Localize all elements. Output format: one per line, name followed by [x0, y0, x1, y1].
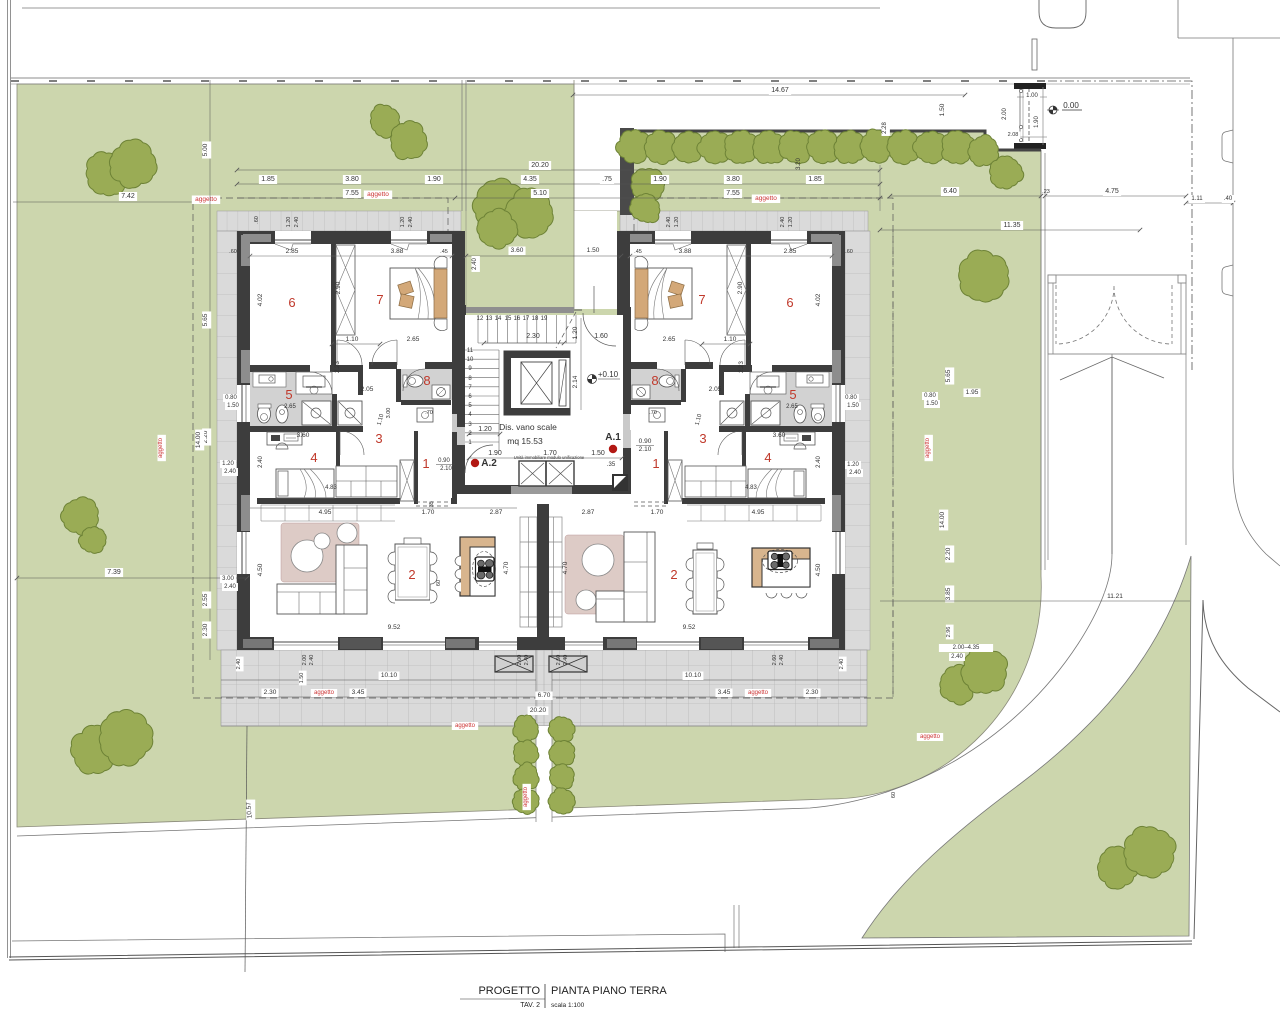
- svg-text:2.60: 2.60: [772, 655, 778, 666]
- svg-text:+0.10: +0.10: [598, 370, 619, 379]
- svg-text:3.60: 3.60: [297, 432, 310, 439]
- svg-text:1.50: 1.50: [587, 247, 600, 254]
- svg-text:2.20: 2.20: [945, 547, 952, 560]
- svg-text:aggetto: aggetto: [925, 437, 931, 458]
- svg-text:7.39: 7.39: [107, 569, 121, 576]
- svg-text:.23: .23: [1042, 189, 1050, 195]
- svg-text:2.40: 2.40: [258, 456, 264, 468]
- svg-text:A.1: A.1: [605, 432, 621, 443]
- svg-text:aggetto: aggetto: [367, 191, 389, 198]
- svg-text:11.21: 11.21: [1107, 593, 1123, 600]
- svg-text:14.00: 14.00: [195, 431, 202, 448]
- svg-text:2.40: 2.40: [780, 217, 786, 228]
- svg-text:0.80: 0.80: [845, 395, 857, 401]
- svg-text:1.20: 1.20: [788, 217, 794, 228]
- svg-text:7.55: 7.55: [345, 190, 359, 197]
- svg-text:2.40: 2.40: [563, 655, 569, 666]
- svg-text:4.70: 4.70: [562, 561, 569, 574]
- svg-text:4.02: 4.02: [257, 293, 264, 306]
- svg-text:18: 18: [532, 316, 539, 322]
- svg-text:10.57: 10.57: [245, 801, 253, 818]
- svg-text:1.20: 1.20: [847, 462, 859, 468]
- svg-text:10: 10: [467, 357, 474, 363]
- svg-text:2.65: 2.65: [663, 336, 676, 343]
- svg-text:0.80: 0.80: [225, 395, 237, 401]
- svg-text:1.70: 1.70: [422, 509, 435, 516]
- svg-text:3.45: 3.45: [718, 689, 731, 696]
- svg-text:2.55: 2.55: [202, 593, 209, 606]
- svg-text:2.40: 2.40: [236, 659, 242, 670]
- svg-text:2: 2: [670, 567, 677, 582]
- svg-text:0.90: 0.90: [438, 458, 450, 464]
- svg-text:A.2: A.2: [481, 458, 497, 469]
- svg-text:2.40: 2.40: [839, 659, 845, 670]
- svg-text:1.20: 1.20: [674, 217, 680, 228]
- svg-text:2.87: 2.87: [582, 509, 595, 516]
- svg-text:15: 15: [505, 316, 512, 322]
- svg-text:4.95: 4.95: [319, 509, 332, 516]
- svg-text:2.30: 2.30: [526, 333, 540, 340]
- svg-text:2.00: 2.00: [1002, 108, 1008, 120]
- svg-text:1.90: 1.90: [488, 450, 502, 457]
- svg-text:.35: .35: [607, 462, 616, 468]
- svg-text:1.20: 1.20: [286, 217, 292, 228]
- svg-text:2.23: 2.23: [335, 361, 341, 373]
- svg-text:2.00–4.35: 2.00–4.35: [953, 645, 980, 651]
- svg-text:2.85: 2.85: [286, 248, 299, 255]
- svg-text:14.00: 14.00: [939, 511, 946, 528]
- svg-text:3: 3: [699, 431, 706, 446]
- svg-text:5.65: 5.65: [945, 369, 952, 382]
- svg-text:11.35: 11.35: [1004, 222, 1021, 229]
- svg-text:2.00: 2.00: [517, 655, 523, 666]
- svg-text:11: 11: [467, 348, 474, 354]
- svg-text:2.85: 2.85: [784, 248, 797, 255]
- svg-text:2.00: 2.00: [302, 655, 308, 666]
- svg-text:9.52: 9.52: [388, 624, 401, 631]
- svg-text:1.20: 1.20: [400, 217, 406, 228]
- svg-text:.70: .70: [649, 410, 657, 416]
- svg-text:20.20: 20.20: [531, 162, 549, 169]
- svg-text:.70: .70: [425, 410, 433, 416]
- svg-text:TAV. 2: TAV. 2: [520, 1002, 540, 1009]
- svg-text:9.52: 9.52: [683, 624, 696, 631]
- svg-text:PROGETTO: PROGETTO: [478, 985, 540, 997]
- svg-text:2.65: 2.65: [786, 404, 798, 410]
- svg-text:2.05: 2.05: [709, 386, 722, 393]
- svg-text:4: 4: [764, 450, 771, 465]
- svg-text:4: 4: [310, 450, 317, 465]
- svg-text:10.10: 10.10: [381, 672, 398, 679]
- svg-text:mq 15.53: mq 15.53: [507, 436, 543, 446]
- svg-text:2.30: 2.30: [264, 689, 277, 696]
- svg-text:1.85: 1.85: [261, 176, 275, 183]
- svg-text:1.11: 1.11: [1191, 196, 1203, 202]
- svg-text:7: 7: [698, 292, 705, 307]
- svg-text:.35: .35: [429, 501, 435, 509]
- svg-text:4.70: 4.70: [503, 561, 510, 574]
- svg-text:.75: .75: [602, 176, 612, 183]
- svg-text:2.40: 2.40: [849, 470, 861, 476]
- svg-text:16: 16: [514, 316, 521, 322]
- svg-text:2.08: 2.08: [1008, 132, 1019, 138]
- svg-text:1.10: 1.10: [346, 336, 359, 343]
- svg-text:1.95: 1.95: [966, 389, 979, 396]
- svg-text:1.50: 1.50: [847, 403, 859, 409]
- svg-text:1.70: 1.70: [651, 509, 664, 516]
- svg-text:20.20: 20.20: [530, 707, 547, 714]
- svg-text:aggetto: aggetto: [755, 195, 777, 202]
- svg-text:2.14: 2.14: [572, 375, 579, 388]
- svg-text:1.70: 1.70: [543, 450, 557, 457]
- svg-text:2.40: 2.40: [408, 217, 414, 228]
- svg-text:1.50: 1.50: [227, 403, 239, 409]
- svg-text:1.50: 1.50: [939, 103, 946, 116]
- svg-text:1: 1: [652, 456, 659, 471]
- svg-text:10.10: 10.10: [685, 672, 702, 679]
- svg-text:4.75: 4.75: [1105, 188, 1119, 195]
- svg-text:7.42: 7.42: [121, 193, 135, 200]
- svg-text:1.50: 1.50: [926, 401, 938, 407]
- svg-text:2.40: 2.40: [472, 258, 478, 270]
- svg-text:aggetto: aggetto: [195, 196, 217, 203]
- svg-text:60: 60: [436, 580, 442, 586]
- svg-text:2.40: 2.40: [816, 456, 822, 468]
- svg-text:PIANTA PIANO TERRA: PIANTA PIANO TERRA: [551, 985, 667, 997]
- svg-text:19: 19: [541, 316, 548, 322]
- svg-text:5: 5: [789, 387, 796, 402]
- svg-text:.45: .45: [634, 249, 642, 255]
- svg-text:3.00: 3.00: [222, 576, 234, 582]
- svg-text:4.35: 4.35: [523, 176, 537, 183]
- svg-text:aggetto: aggetto: [920, 734, 941, 740]
- svg-text:1.50: 1.50: [299, 673, 305, 684]
- svg-text:4.83: 4.83: [745, 485, 757, 491]
- svg-text:2.30: 2.30: [202, 623, 209, 636]
- svg-text:8: 8: [651, 373, 658, 388]
- svg-text:7.55: 7.55: [726, 190, 740, 197]
- svg-text:17: 17: [523, 316, 530, 322]
- svg-text:2.23: 2.23: [739, 361, 745, 373]
- svg-text:2.10: 2.10: [440, 466, 452, 472]
- svg-text:1.85: 1.85: [808, 176, 822, 183]
- svg-text:2.60: 2.60: [556, 655, 562, 666]
- svg-text:4.83: 4.83: [325, 485, 337, 491]
- svg-text:3.20: 3.20: [796, 158, 802, 170]
- svg-text:5.10: 5.10: [533, 190, 547, 197]
- svg-text:2.40: 2.40: [224, 469, 236, 475]
- svg-text:0.00: 0.00: [1063, 101, 1079, 110]
- svg-text:1.90: 1.90: [1034, 116, 1040, 128]
- svg-text:Dis. vano scale: Dis. vano scale: [499, 422, 557, 432]
- svg-text:aggetto: aggetto: [314, 690, 335, 696]
- svg-text:14.67: 14.67: [771, 87, 789, 94]
- svg-text:2.96: 2.96: [946, 627, 952, 638]
- svg-text:1.10: 1.10: [724, 336, 737, 343]
- svg-text:3.00: 3.00: [386, 408, 392, 419]
- svg-text:1.90: 1.90: [427, 176, 441, 183]
- svg-text:6.40: 6.40: [943, 188, 957, 195]
- svg-text:2: 2: [408, 567, 415, 582]
- svg-text:3.80: 3.80: [345, 176, 359, 183]
- svg-text:0.80: 0.80: [924, 393, 936, 399]
- svg-text:2.30: 2.30: [806, 689, 819, 696]
- svg-text:.60: .60: [845, 249, 853, 255]
- svg-text:4.95: 4.95: [752, 509, 765, 516]
- svg-text:6: 6: [786, 295, 793, 310]
- svg-text:14: 14: [495, 316, 502, 322]
- svg-text:4.50: 4.50: [815, 563, 822, 576]
- svg-text:60: 60: [891, 792, 897, 798]
- svg-text:5.00: 5.00: [202, 143, 209, 156]
- svg-text:1: 1: [422, 456, 429, 471]
- svg-text:2.28: 2.28: [882, 122, 888, 134]
- svg-text:3.45: 3.45: [352, 689, 365, 696]
- svg-text:3.80: 3.80: [726, 176, 740, 183]
- svg-text:3.60: 3.60: [511, 247, 524, 254]
- svg-text:3.88: 3.88: [391, 248, 404, 255]
- svg-text:1.90: 1.90: [653, 176, 667, 183]
- svg-text:3.85: 3.85: [945, 587, 952, 600]
- svg-text:13: 13: [486, 316, 493, 322]
- svg-text:3.60: 3.60: [773, 432, 786, 439]
- svg-text:1.20: 1.20: [572, 326, 579, 339]
- svg-text:.60: .60: [229, 249, 237, 255]
- svg-text:2.65: 2.65: [284, 404, 296, 410]
- svg-text:5.65: 5.65: [202, 313, 209, 326]
- svg-text:scala 1:100: scala 1:100: [551, 1002, 585, 1009]
- svg-text:aggetto: aggetto: [158, 437, 164, 458]
- svg-text:6.70: 6.70: [538, 692, 551, 699]
- svg-text:4.02: 4.02: [815, 293, 822, 306]
- svg-text:3.88: 3.88: [679, 248, 692, 255]
- svg-text:2.05: 2.05: [361, 386, 374, 393]
- svg-text:8: 8: [423, 373, 430, 388]
- svg-text:2.90: 2.90: [737, 281, 744, 294]
- svg-text:aggetto: aggetto: [455, 723, 476, 729]
- svg-text:1.20: 1.20: [478, 426, 492, 433]
- svg-text:2.87: 2.87: [490, 509, 503, 516]
- svg-text:2.90: 2.90: [335, 281, 342, 294]
- svg-text:3: 3: [375, 431, 382, 446]
- svg-text:1.20: 1.20: [222, 461, 234, 467]
- svg-text:.60: .60: [254, 216, 260, 224]
- svg-text:2.40: 2.40: [524, 655, 530, 666]
- svg-text:2.40: 2.40: [294, 217, 300, 228]
- svg-text:7: 7: [376, 292, 383, 307]
- svg-text:aggetto: aggetto: [523, 786, 529, 807]
- svg-text:.45: .45: [440, 249, 448, 255]
- svg-text:12: 12: [477, 316, 484, 322]
- svg-text:2.40: 2.40: [309, 655, 315, 666]
- svg-text:1.00: 1.00: [1026, 93, 1038, 99]
- svg-text:.40: .40: [1224, 196, 1233, 202]
- svg-text:2.40: 2.40: [224, 584, 236, 590]
- svg-text:2.40: 2.40: [666, 217, 672, 228]
- svg-text:0.90: 0.90: [639, 438, 652, 445]
- svg-text:aggetto: aggetto: [748, 690, 769, 696]
- svg-text:4.50: 4.50: [257, 563, 264, 576]
- svg-text:2.40: 2.40: [951, 654, 963, 660]
- svg-text:2.10: 2.10: [639, 446, 652, 453]
- svg-text:2.65: 2.65: [407, 336, 420, 343]
- svg-text:2.40: 2.40: [779, 655, 785, 666]
- svg-text:6: 6: [288, 295, 295, 310]
- svg-text:1.50: 1.50: [591, 450, 605, 457]
- svg-text:5: 5: [285, 387, 292, 402]
- svg-text:1.60: 1.60: [594, 333, 608, 340]
